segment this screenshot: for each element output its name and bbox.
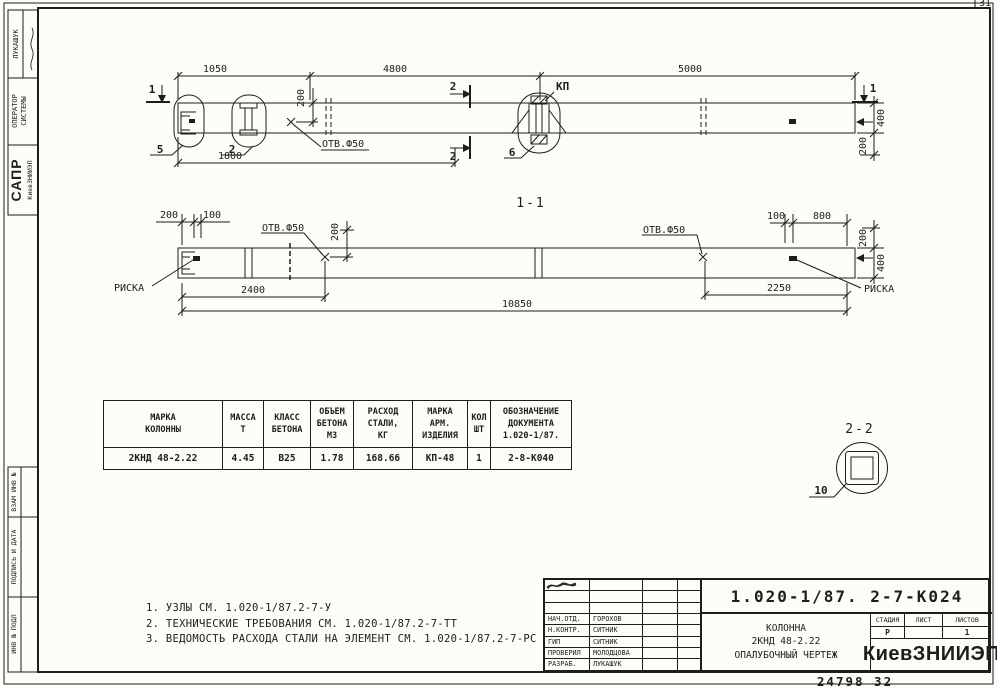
dim-100-left: 100: [203, 210, 221, 221]
dim-2400: 2400: [241, 285, 265, 296]
hole-label-left: ОТВ.Ф50: [262, 223, 304, 234]
role-name: МОЛОДЦОВА: [590, 648, 643, 659]
sheets-label: ЛИСТОВ: [943, 614, 991, 627]
dim-1800: 1800: [218, 151, 242, 162]
callout-10: 10: [814, 484, 827, 497]
title-block-main: 1.020-1/87. 2-7-К024 КОЛОННА 2КНД 48-2.2…: [702, 580, 992, 670]
role-label: ГИП: [545, 637, 590, 648]
sidebar-sapr-org-label: КиевЗНИИЭП: [26, 160, 34, 199]
signature-cell: [643, 659, 678, 670]
role-name: СИТНИК: [590, 625, 643, 636]
stage-block: СТАДИЯ ЛИСТ ЛИСТОВ Р 1 КиевЗНИИЭП: [870, 614, 992, 670]
spec-header: ОБЪЕМ БЕТОНА М3: [311, 401, 354, 448]
spec-cell: 168.66: [354, 448, 413, 469]
sidebar-system-label: СИСТЕМЫ: [20, 96, 28, 126]
section-2-2: 2-2 10: [809, 422, 888, 497]
spec-cell: 2-8-К040: [491, 448, 571, 469]
callout-6: 6: [509, 146, 516, 159]
hole-label-right: ОТВ.Ф50: [643, 225, 685, 236]
spec-header: МАРКА КОЛОННЫ: [104, 401, 223, 448]
title-block-signatures: НАЧ.ОТД. ГОРОХОВ Н.КОНТР. СИТНИК ГИП СИТ…: [545, 580, 702, 670]
signature-cell: [643, 614, 678, 625]
spec-header: ОБОЗНАЧЕНИЕ ДОКУМЕНТА 1.020-1/87.: [491, 401, 571, 448]
note-line: 2. ТЕХНИЧЕСКИЕ ТРЕБОВАНИЯ СМ. 1.020-1/87…: [146, 617, 537, 633]
spec-table: МАРКА КОЛОННЫ МАССА Т КЛАСС БЕТОНА ОБЪЕМ…: [103, 400, 572, 470]
riska-mark: [789, 119, 796, 124]
view-1-1-title: 1-1: [516, 196, 545, 211]
section-2-2-title: 2-2: [845, 422, 874, 437]
section-mark-2-top: 2: [450, 80, 457, 93]
sidebar-stamps: ЛУКАШУК ОПЕРАТОР СИСТЕМЫ САПР КиевЗНИИЭП…: [8, 10, 38, 672]
spec-cell: 2КНД 48-2.22: [104, 448, 223, 469]
riska-label-left: РИСКА: [114, 283, 144, 294]
sheet-label: ЛИСТ: [905, 614, 943, 627]
dim-100-right: 100: [767, 211, 785, 222]
drawing-sheet: 31 ЛУКАШУК ОПЕРАТОР СИСТЕМЫ САПР КиевЗНИ…: [0, 0, 997, 688]
view-1-1: 1-1 200 100 ОТВ.Ф50 200 ОТВ.Ф50: [114, 196, 894, 316]
dim-400-1-1: 400: [876, 254, 887, 272]
console-kp: КП: [512, 80, 569, 153]
dim-4800: 4800: [383, 64, 407, 75]
signature-mark: [31, 28, 33, 70]
spec-header: МАРКА АРМ. ИЗДЕЛИЯ: [413, 401, 468, 448]
dim-800: 800: [813, 211, 831, 222]
spec-cell: 1.78: [311, 448, 354, 469]
product-title: КОЛОННА 2КНД 48-2.22 ОПАЛУБОЧНЫЙ ЧЕРТЕЖ: [702, 614, 870, 670]
sidebar-sapr-label: САПР: [8, 158, 24, 201]
spec-header: РАСХОД СТАЛИ, КГ: [354, 401, 413, 448]
signature-cell: [643, 625, 678, 636]
note-line: 3. ВЕДОМОСТЬ РАСХОДА СТАЛИ НА ЭЛЕМЕНТ СМ…: [146, 632, 537, 648]
role-label: ПРОВЕРИЛ: [545, 648, 590, 659]
riska-mark: [193, 256, 200, 261]
organization-name: КиевЗНИИЭП: [871, 639, 992, 670]
dim-200-end-1-1: 200: [858, 229, 869, 247]
riska-mark: [189, 119, 195, 123]
role-name: СИТНИК: [590, 637, 643, 648]
dim-400-right: 400: [876, 109, 887, 127]
section-mark-1-right: 1: [870, 82, 877, 95]
dim-5000: 5000: [678, 64, 702, 75]
section-mark-2-bottom: 2: [450, 150, 457, 163]
stage-label: СТАДИЯ: [871, 614, 905, 627]
section-mark-1-left: 1: [149, 83, 156, 96]
signature-cell: [643, 648, 678, 659]
document-number: 1.020-1/87. 2-7-К024: [702, 580, 992, 614]
corner-page-mark: 31: [979, 0, 991, 9]
stage-value: Р: [871, 627, 905, 639]
top-view: 5 2 1050 4800 5000 1800 1 1 2: [146, 64, 887, 167]
role-label: НАЧ.ОТД.: [545, 614, 590, 625]
dim-10850: 10850: [502, 299, 532, 310]
riska-label-right: РИСКА: [864, 284, 894, 295]
sidebar-vzam-label: ВЗАМ ИНВ №: [10, 472, 18, 511]
sidebar-inv-label: ИНВ № ПОДЛ: [10, 614, 18, 653]
role-name: ГОРОХОВ: [590, 614, 643, 625]
sheets-value: 1: [943, 627, 991, 639]
spec-cell: 4.45: [223, 448, 264, 469]
dim-1050: 1050: [203, 64, 227, 75]
kp-label: КП: [556, 80, 569, 93]
sidebar-podpis-label: ПОДПИСЬ И ДАТА: [10, 530, 18, 585]
dim-200-hole-1-1: 200: [330, 223, 341, 241]
dim-200-left: 200: [160, 210, 178, 221]
riska-mark: [789, 256, 797, 261]
title-block: НАЧ.ОТД. ГОРОХОВ Н.КОНТР. СИТНИК ГИП СИТ…: [543, 578, 990, 672]
dim-200-hole: 200: [296, 89, 307, 107]
spec-header: МАССА Т: [223, 401, 264, 448]
role-label: РАЗРАБ.: [545, 659, 590, 670]
footer-number: 24798 32: [790, 674, 920, 688]
note-line: 1. УЗЛЫ СМ. 1.020-1/87.2-7-У: [146, 601, 537, 617]
sidebar-operator-label: ОПЕРАТОР: [11, 94, 19, 128]
sidebar-author-label: ЛУКАШУК: [12, 28, 20, 58]
spec-header: КОЛ ШТ: [468, 401, 491, 448]
spec-cell: В25: [264, 448, 311, 469]
signature-cell: [643, 637, 678, 648]
role-label: Н.КОНТР.: [545, 625, 590, 636]
hole-label: ОТВ.Ф50: [322, 139, 364, 150]
dim-200-right: 200: [858, 137, 869, 155]
role-name: ЛУКАШУК: [590, 659, 643, 670]
dim-2250: 2250: [767, 283, 791, 294]
spec-cell: КП-48: [413, 448, 468, 469]
spec-header: КЛАСС БЕТОНА: [264, 401, 311, 448]
callout-5: 5: [157, 143, 164, 156]
sheet-value: [905, 627, 943, 639]
spec-cell: 1: [468, 448, 491, 469]
notes: 1. УЗЛЫ СМ. 1.020-1/87.2-7-У 2. ТЕХНИЧЕС…: [146, 601, 537, 648]
